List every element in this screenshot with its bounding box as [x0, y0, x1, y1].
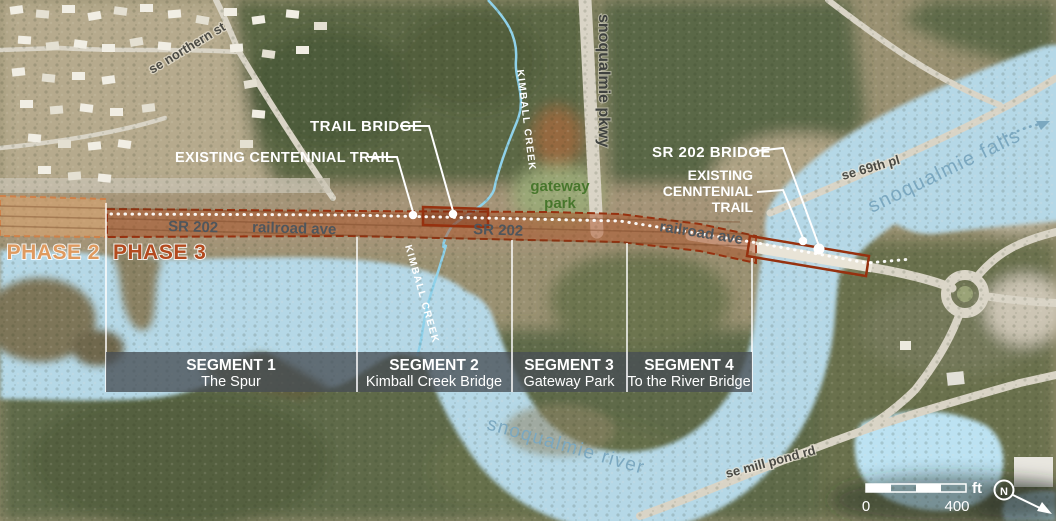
existing-cenntenial-line1: EXISTING: [688, 167, 753, 183]
trail-phasing-map: SEGMENT 1 The Spur SEGMENT 2 Kimball Cre…: [0, 0, 1056, 521]
segment-bar: SEGMENT 1 The Spur SEGMENT 2 Kimball Cre…: [106, 352, 752, 392]
trail-bridge-callout: TRAIL BRIDGE: [310, 118, 422, 135]
phase3-label: PHASE 3: [113, 241, 206, 264]
gateway-park-line2: park: [544, 195, 576, 212]
sr202-bridge-marker: [814, 244, 825, 255]
segment-2-subtitle: Kimball Creek Bridge: [366, 374, 502, 390]
segment-1-name: SEGMENT 1: [186, 357, 276, 374]
north-letter: N: [1000, 486, 1008, 498]
railroad-ave-label-left: railroad ave: [252, 219, 337, 238]
snoqualmie-pkwy-label: snoqualmie pkwy: [595, 14, 612, 147]
phase2-label: PHASE 2: [7, 241, 100, 264]
segment-3-subtitle: Gateway Park: [523, 374, 615, 390]
segment-4-name: SEGMENT 4: [644, 357, 734, 374]
sr202-bridge-callout: SR 202 BRIDGE: [652, 144, 771, 161]
existing-cenntenial-line3: TRAIL: [712, 199, 754, 215]
sr202-label-left: SR 202: [168, 218, 218, 236]
trail-point-marker: [409, 211, 418, 220]
existing-trail-marker: [799, 237, 808, 246]
segment-3-name: SEGMENT 3: [524, 357, 614, 374]
trail-bridge-marker: [449, 210, 458, 219]
map-canvas: SEGMENT 1 The Spur SEGMENT 2 Kimball Cre…: [0, 0, 1056, 521]
segment-2-name: SEGMENT 2: [389, 357, 479, 374]
existing-cenntenial-line2: CENNTENIAL: [663, 183, 754, 199]
sr202-label-right: SR 202: [473, 221, 524, 240]
scale-start: 0: [862, 498, 870, 515]
existing-centennial-trail-callout: EXISTING CENTENNIAL TRAIL: [175, 150, 394, 166]
segment-1-subtitle: The Spur: [201, 374, 261, 390]
scale-end: 400: [944, 498, 969, 515]
gateway-park-line1: gateway: [530, 178, 590, 195]
segment-4-subtitle: To the River Bridge: [627, 374, 750, 390]
scale-unit: ft: [972, 480, 982, 497]
